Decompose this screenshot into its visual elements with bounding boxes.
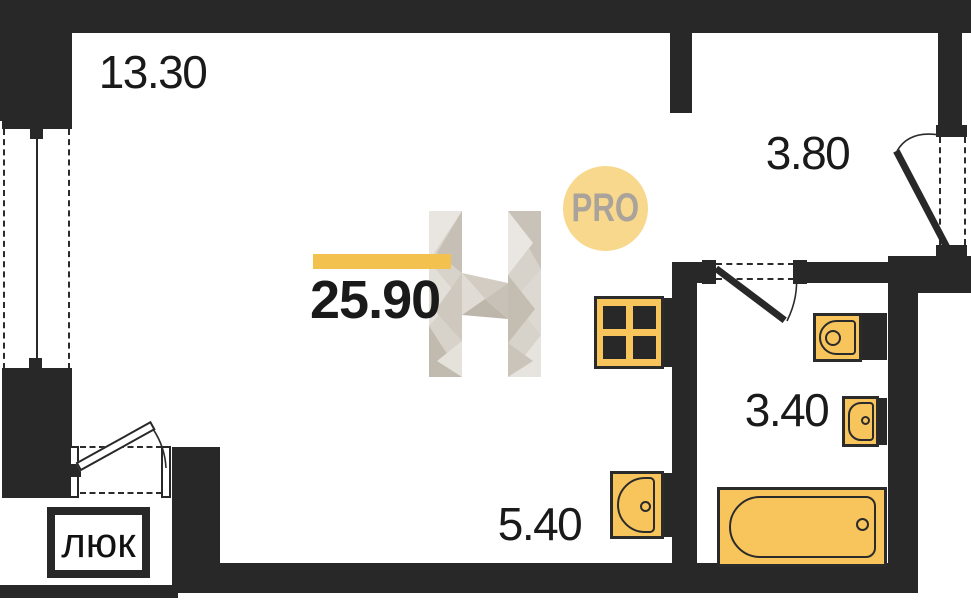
kitchen-sink-drain [640,501,651,512]
room-label-bathroom: 3.40 [734,387,839,433]
floorplan: 13.30 3.80 3.40 5.40 25.90 люк PRO [0,0,971,600]
hatch-box: люк [47,507,150,578]
small-sink-wall-strip [879,398,887,445]
wall-stub-top [670,33,692,113]
bathtub-drain [856,518,869,531]
bathtub-basin [729,496,876,558]
room-label-kitchen: 5.40 [487,501,592,547]
wall-left [2,377,72,498]
kitchen-sink-wall-strip [664,473,672,537]
balcony-wall-bottom [0,585,178,598]
window-mullion-bottom [29,358,42,370]
stove-burner [603,336,626,359]
wall-bottom [172,563,918,593]
washer-block [862,313,887,360]
bathroom-sink-drain [825,330,841,346]
wall-right-block [888,256,971,293]
window-glass-line [36,136,38,364]
balcony-door-dash-bottom [80,492,162,494]
bath-wall-top-left [672,262,704,283]
entry-door-jamb-bottom [936,245,967,257]
hatch-label: люк [61,522,135,564]
stove-wall-strip [664,298,672,367]
balcony-door-jamb-right [161,446,171,498]
entry-door-leaf [893,149,950,249]
entry-door-dash-right [964,137,966,245]
bath-door-dash-top [716,263,794,265]
wall-kitchen-bath-divider [672,262,697,593]
wall-top [0,0,971,33]
window-edge-dash-left [3,129,5,369]
h-logo-watermark-icon [429,211,541,377]
small-sink-drain [861,416,870,425]
bath-wall-right [888,293,918,593]
bath-door-leaf [714,266,787,323]
stove-burner [633,306,656,329]
pro-badge: PRO [563,166,648,251]
bath-wall-top-right [806,262,890,283]
bath-door-jamb-right [793,260,807,284]
stove-burner [603,306,626,329]
window-mullion-top [30,127,43,139]
window-edge-dash-right [68,129,70,369]
pro-badge-label: PRO [572,186,640,231]
hatch-box-inner: люк [55,515,142,570]
wall-right-top [938,33,962,126]
wall-top-left-block [0,0,72,121]
total-area-accent-bar [313,254,451,269]
balcony-column [172,447,220,593]
entry-door-jamb-top [936,125,967,137]
room-label-living: 13.30 [95,49,210,95]
room-label-hall: 3.80 [755,130,860,176]
stove-burner [633,336,656,359]
total-area-label: 25.90 [310,273,440,327]
